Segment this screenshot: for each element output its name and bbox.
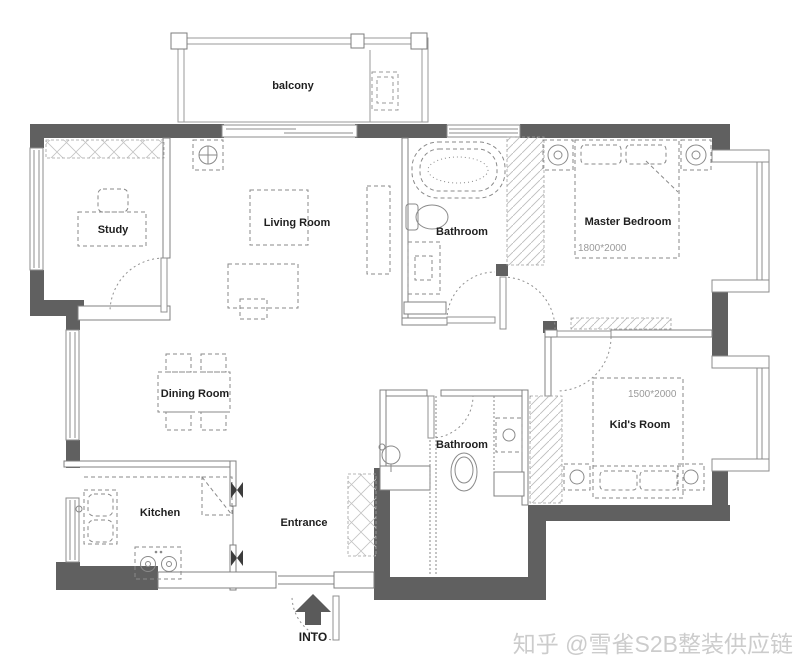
study-door-leaf xyxy=(161,258,167,312)
entry-arrow-icon xyxy=(295,594,331,625)
downlight-icon xyxy=(678,464,704,490)
downlight-icon xyxy=(564,464,590,490)
downlight-icon xyxy=(681,140,711,170)
floor-plan-image: balcony Study Living Room Bathroom Maste… xyxy=(0,0,800,670)
refrigerator xyxy=(202,477,232,515)
entrance-shoe-cabinet xyxy=(348,474,376,556)
bathroom-top-label: Bathroom xyxy=(436,226,488,238)
balcony-column xyxy=(411,33,427,49)
window-dining-left xyxy=(66,330,79,440)
floor-plan-drawing: balcony Study Living Room Bathroom Maste… xyxy=(0,0,800,670)
watermark-text: 知乎 @雪雀S2B整装供应链 xyxy=(513,631,793,657)
bathroom-top-door-leaf xyxy=(447,317,495,323)
kids-bed-size-label: 1500*2000 xyxy=(628,389,677,400)
balcony-label: balcony xyxy=(272,80,314,92)
tv-cabinet xyxy=(367,186,390,274)
master-bed xyxy=(575,140,679,258)
kitchen-sink xyxy=(76,490,117,544)
window-kitchen-left xyxy=(66,498,79,562)
balcony-column xyxy=(351,34,364,48)
ceiling-lamp-icon xyxy=(193,140,223,170)
kids-door-leaf xyxy=(557,331,611,337)
cabinets xyxy=(46,137,671,556)
bay-window-master xyxy=(712,150,769,292)
structural-walls xyxy=(30,124,730,600)
downlight-icon xyxy=(543,140,573,170)
shower-head xyxy=(496,418,522,452)
sofa-ottoman xyxy=(240,299,267,319)
study-label: Study xyxy=(98,224,129,236)
master-low-cabinet xyxy=(571,318,671,329)
kids-room-label: Kid's Room xyxy=(610,419,671,431)
master-bed-size-label: 1800*2000 xyxy=(578,243,627,254)
window-study-left xyxy=(30,148,43,270)
bathroom-bottom-door-leaf xyxy=(428,396,434,438)
bathroom-bottom-label: Bathroom xyxy=(436,439,488,451)
study-chair xyxy=(98,189,128,212)
balcony-sliding-door xyxy=(222,125,357,137)
entrance-label: Entrance xyxy=(280,517,327,529)
study-top-cabinet xyxy=(46,140,164,158)
kids-wardrobe xyxy=(530,396,562,503)
sofa-chaise xyxy=(228,264,298,308)
into-label: INTO xyxy=(299,630,327,644)
balcony-column xyxy=(171,33,187,49)
dining-room-label: Dining Room xyxy=(161,388,230,400)
kitchen-label: Kitchen xyxy=(140,507,181,519)
bathtub xyxy=(412,142,505,198)
balcony-railing xyxy=(171,33,428,122)
bay-window-kids xyxy=(712,356,769,471)
master-door-leaf xyxy=(500,277,506,329)
windows xyxy=(30,125,769,562)
toilet-bottom xyxy=(451,453,477,491)
living-room-label: Living Room xyxy=(264,217,331,229)
entrance-door-leaf xyxy=(333,596,339,640)
master-wardrobe xyxy=(507,137,544,265)
bathroom-vanity xyxy=(408,242,440,294)
master-bedroom-label: Master Bedroom xyxy=(585,216,672,228)
window-bathroom-top xyxy=(447,125,520,137)
washing-machine-icon xyxy=(372,72,398,110)
